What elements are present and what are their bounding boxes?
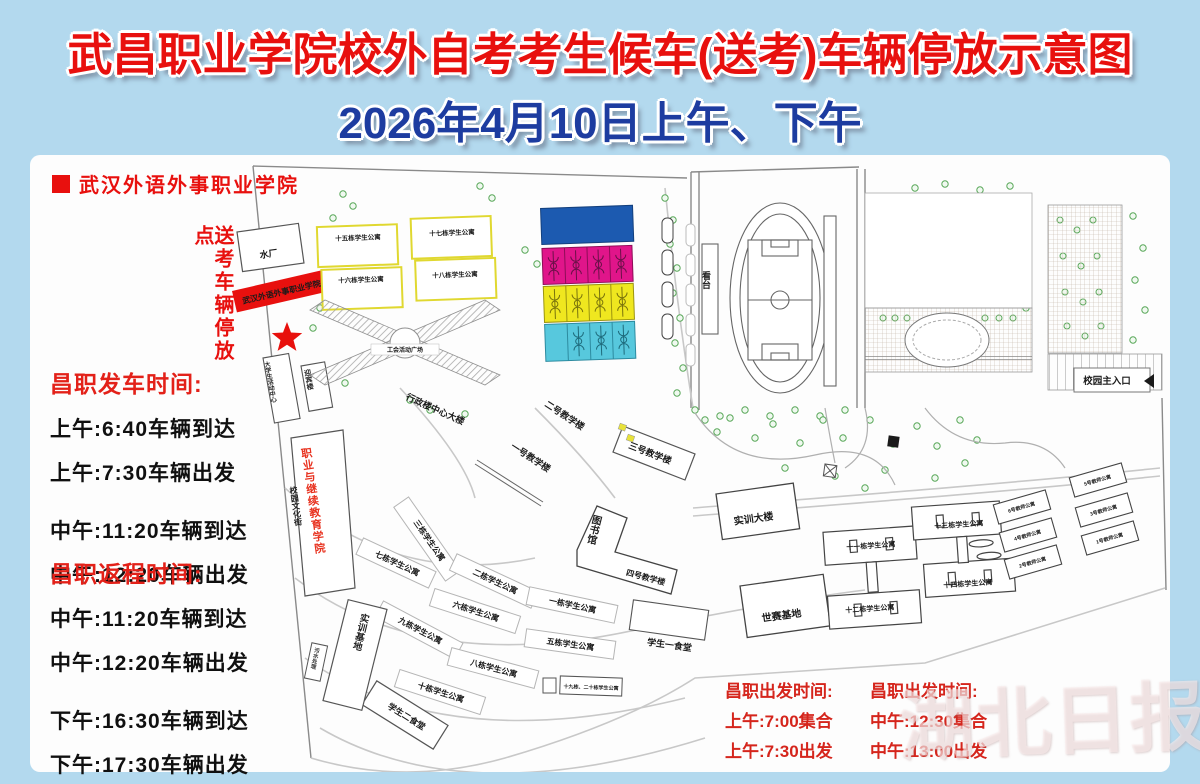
schedule-line: 下午:17:30车辆出发 <box>50 749 249 779</box>
schedule-line: 上午:6:40车辆到达 <box>50 413 249 443</box>
morning-meet-schedule: 昌职出发时间: 上午:7:00集合 上午:7:30出发 <box>725 677 885 762</box>
schedule-line: 上午:7:00集合 <box>725 707 885 732</box>
red-square-icon <box>52 175 70 193</box>
utility-box <box>543 678 556 693</box>
morning-meet-title: 昌职出发时间: <box>725 677 885 702</box>
label-teach2: 二号教学楼 <box>543 398 587 432</box>
schedule-line: 下午:16:30车辆到达 <box>50 705 249 735</box>
sports-courts <box>541 205 638 361</box>
teacher-apartments <box>993 463 1138 579</box>
poster: 武昌职业学院校外自考考生候车(送考)车辆停放示意图 2026年4月10日上午、下… <box>0 0 1200 784</box>
map-panel: 武汉外语外事职业学院 送考车辆停放点 昌职发车时间: 上午:6:40车辆到达 上… <box>30 155 1170 772</box>
union-plaza <box>310 300 500 385</box>
canteen1-building <box>629 600 708 640</box>
park-pavilion <box>823 464 837 478</box>
schedule-line: 中午:12:20车辆出发 <box>50 647 249 677</box>
noon-meet-title: 昌职出发时间: <box>870 677 1030 702</box>
return-schedule-title: 昌职返程时间: <box>50 555 249 589</box>
cyan-courts <box>545 321 636 361</box>
parking-star-icon <box>272 322 302 351</box>
teach1-building <box>475 460 543 506</box>
label-main-entrance: 校园主入口 <box>1083 375 1131 387</box>
label-grandstand: 看台 <box>701 271 710 303</box>
label-teach1: 一号教学楼 <box>509 440 553 474</box>
water-plant-building <box>237 223 304 271</box>
east-parking <box>1048 205 1162 392</box>
small-court-column-2 <box>686 224 695 366</box>
schedule-line: 中午:11:20车辆到达 <box>50 515 249 545</box>
label-union-plaza: 工会活动广场 <box>387 346 423 354</box>
stadium <box>702 203 836 393</box>
training-building <box>716 483 800 539</box>
departure-schedule-title: 昌职发车时间: <box>50 365 249 399</box>
label-admin: 行政楼中心大楼 <box>403 391 466 427</box>
schedule-line: 中午:11:20车辆到达 <box>50 603 249 633</box>
schedule-line: 中午:13:00出发 <box>870 737 1030 762</box>
noon-meet-schedule: 昌职出发时间: 中午:12:30集合 中午:13:00出发 <box>870 677 1030 762</box>
poster-date-subtitle: 2026年4月10日上午、下午 <box>0 87 1200 151</box>
yellow-courts <box>543 283 634 322</box>
park-kiosk <box>887 435 899 447</box>
return-schedule: 昌职返程时间: 中午:11:20车辆到达 中午:12:20车辆出发 下午:16:… <box>50 555 249 779</box>
poster-title: 武昌职业学院校外自考考生候车(送考)车辆停放示意图 <box>0 18 1200 83</box>
small-court-column <box>662 218 673 339</box>
park-paths <box>695 408 1065 485</box>
schedule-line: 上午:7:30车辆出发 <box>50 457 249 487</box>
label-canteen1: 学生一食堂 <box>646 636 692 653</box>
worldskills-building <box>740 574 830 637</box>
football-field <box>748 240 812 360</box>
schedule-line: 上午:7:30出发 <box>725 737 885 762</box>
schedule-line: 中午:12:30集合 <box>870 707 1030 732</box>
east-plaza <box>865 193 1032 372</box>
magenta-courts <box>542 245 633 284</box>
